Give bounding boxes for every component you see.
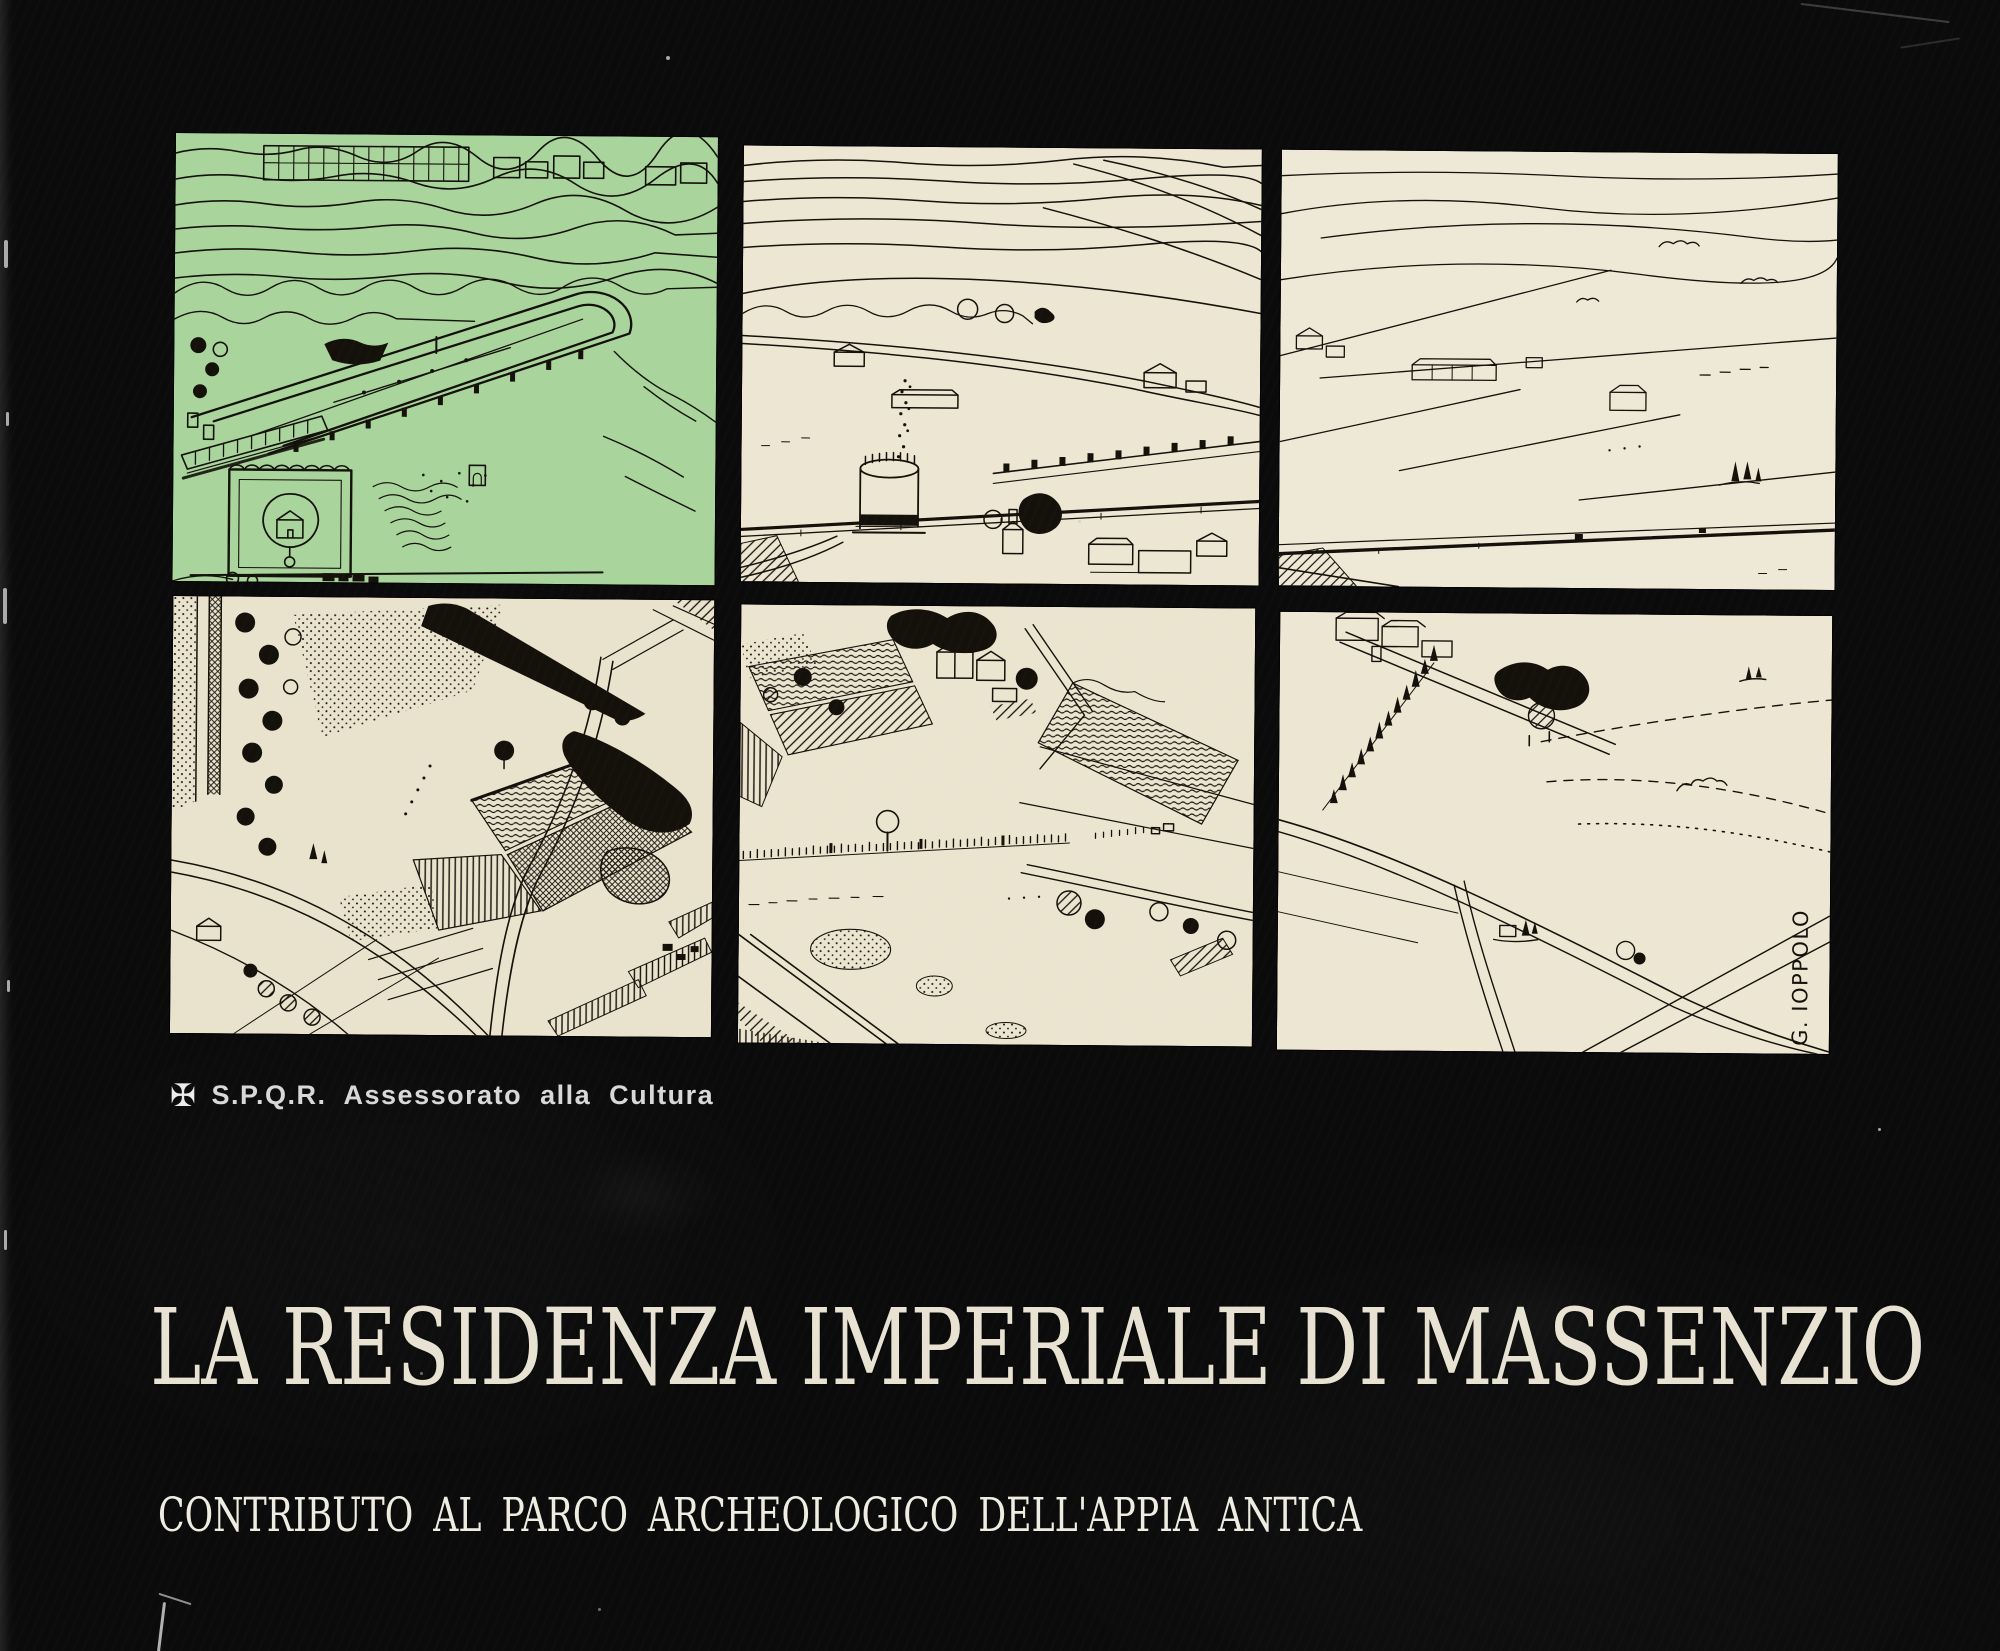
illustration-grid: G. IOPPOLO xyxy=(169,133,1838,1066)
spine-speck xyxy=(7,980,10,992)
scratch-mark xyxy=(1900,37,1960,48)
wear-smudge xyxy=(560,1150,720,1240)
dust-speck xyxy=(598,1608,601,1611)
panel-ruins-drawing xyxy=(738,604,1255,1046)
spine-speck xyxy=(6,412,9,426)
dust-speck xyxy=(666,56,670,60)
book-cover: G. IOPPOLO ✠ S.P.Q.R. Assessorato alla C… xyxy=(0,0,2000,1651)
dust-speck xyxy=(420,1372,423,1375)
panel-sparse-drawing: G. IOPPOLO xyxy=(1277,612,1832,1054)
panel-campagna-drawing xyxy=(1278,150,1837,590)
panel-tomb-drawing xyxy=(740,145,1261,585)
panel-via-appia-tomb xyxy=(740,145,1261,585)
spine-speck xyxy=(4,1230,7,1250)
book-title: LA RESIDENZA IMPERIALE DI MASSENZIO xyxy=(150,1295,1925,1401)
panel-fields-drawing xyxy=(170,596,714,1037)
spqr-cross-icon: ✠ xyxy=(170,1080,197,1111)
scratch-mark xyxy=(157,1602,166,1651)
panel-appia-ruins-line xyxy=(738,604,1255,1046)
panel-sparse-fields: G. IOPPOLO xyxy=(1277,612,1832,1054)
scratch-mark xyxy=(1800,3,1949,23)
spine-speck xyxy=(4,240,8,268)
dust-speck xyxy=(1878,1128,1881,1131)
publisher-text: S.P.Q.R. Assessorato alla Cultura xyxy=(211,1080,714,1111)
panel-circus-drawing xyxy=(172,133,718,585)
artist-signature: G. IOPPOLO xyxy=(1788,909,1813,1046)
publisher-line: ✠ S.P.Q.R. Assessorato alla Cultura xyxy=(170,1080,714,1111)
panel-circus-of-maxentius xyxy=(172,133,718,585)
spine-speck xyxy=(3,588,7,624)
panel-cultivated-fields xyxy=(170,596,714,1037)
panel-open-campagna xyxy=(1278,150,1837,590)
book-subtitle: CONTRIBUTO AL PARCO ARCHEOLOGICO DELL'AP… xyxy=(158,1492,1362,1539)
dust-speck xyxy=(1078,520,1081,523)
